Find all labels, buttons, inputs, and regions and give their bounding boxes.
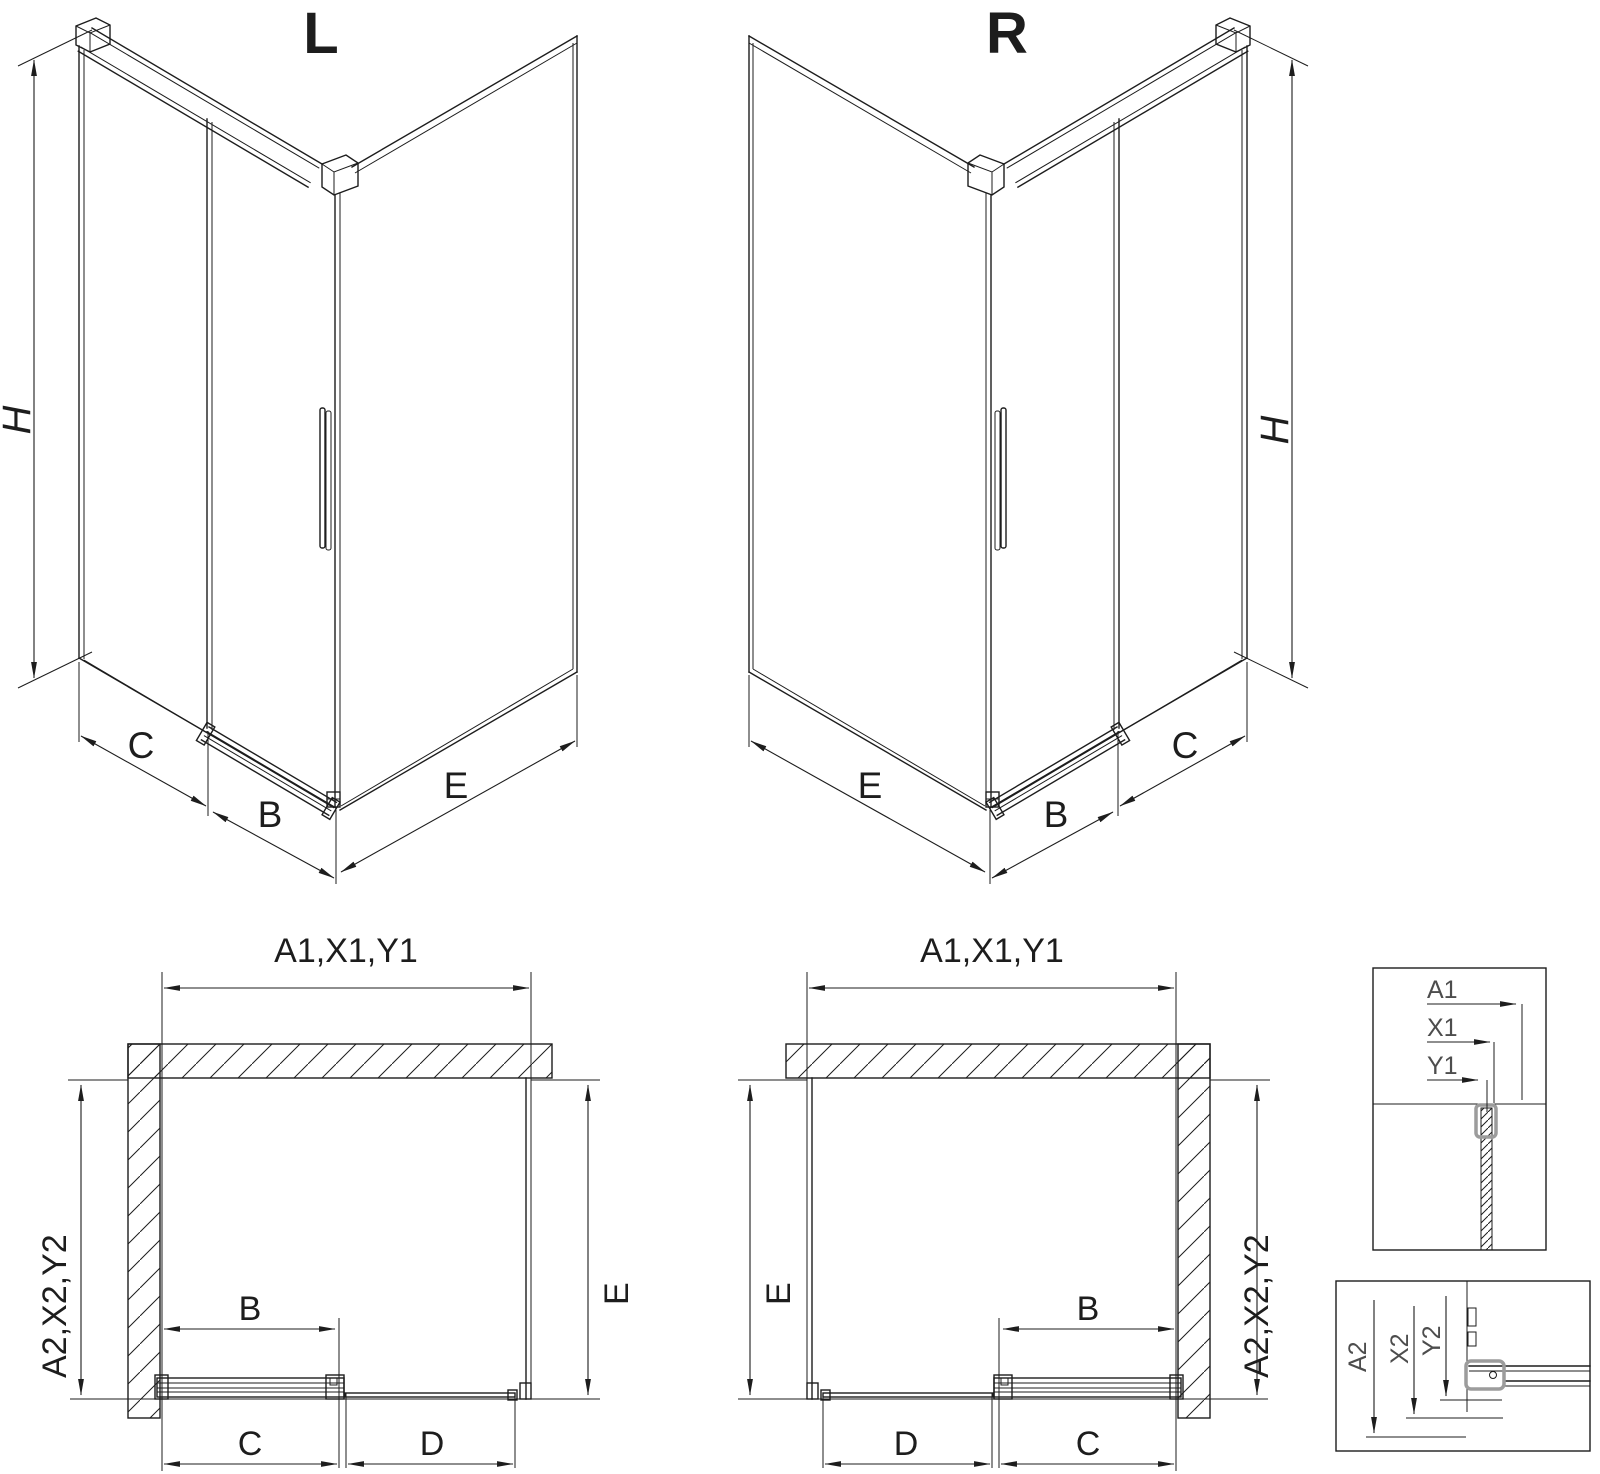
detail-bottom-a2-label: A2 bbox=[1344, 1341, 1372, 1372]
iso-left-title: L bbox=[303, 1, 338, 66]
detail-bottom-roller bbox=[1490, 1372, 1497, 1379]
iso-view-left: L H C B E bbox=[0, 1, 577, 884]
plan-left-depth-label: A2,X2,Y2 bbox=[36, 1234, 74, 1378]
detail-top-a1-label: A1 bbox=[1427, 976, 1458, 1004]
plan-view-right: A1,X1,Y1 A2,X2,Y2 E B C D bbox=[738, 932, 1276, 1471]
plan-right-depth-label: A2,X2,Y2 bbox=[1238, 1234, 1276, 1378]
plan-left-dim-b-label: B bbox=[239, 1290, 262, 1328]
plan-right-wall-side bbox=[1178, 1044, 1210, 1418]
plan-right-dim-e-label: E bbox=[760, 1282, 798, 1305]
shower-enclosure-diagram: L H C B E R H C B E A1,X1,Y1 A2,X2,Y2 E … bbox=[0, 0, 1600, 1474]
iso-right-dim-h-label: H bbox=[1253, 415, 1297, 444]
iso-left-dim-c-label: C bbox=[128, 725, 155, 766]
detail-top-x1-label: X1 bbox=[1427, 1014, 1458, 1042]
plan-view-left: A1,X1,Y1 A2,X2,Y2 E B C D bbox=[36, 932, 636, 1471]
plan-right-dim-d-label: D bbox=[894, 1425, 919, 1463]
detail-top-glass-section bbox=[1481, 1108, 1492, 1250]
detail-top-y1-label: Y1 bbox=[1427, 1052, 1458, 1080]
iso-left-dim-h-label: H bbox=[0, 405, 39, 434]
plan-left-width-label: A1,X1,Y1 bbox=[274, 932, 418, 970]
detail-view-bottom: A2 X2 Y2 bbox=[1336, 1281, 1590, 1451]
iso-right-title: R bbox=[986, 1, 1028, 66]
plan-right-wall-top bbox=[786, 1044, 1210, 1078]
detail-bottom-x2-label: X2 bbox=[1386, 1333, 1414, 1364]
iso-right-dim-c-label: C bbox=[1172, 725, 1199, 766]
plan-left-wall-top bbox=[128, 1044, 552, 1078]
plan-right-dim-b-label: B bbox=[1077, 1290, 1100, 1328]
iso-left-dim-e-label: E bbox=[444, 765, 469, 806]
detail-view-top: A1 X1 Y1 bbox=[1373, 968, 1546, 1250]
iso-left-dim-b-label: B bbox=[258, 794, 283, 835]
detail-bottom-clamp bbox=[1466, 1361, 1504, 1389]
plan-left-dim-e-label: E bbox=[598, 1282, 636, 1305]
plan-right-dim-c-label: C bbox=[1076, 1425, 1101, 1463]
iso-view-right: R H C B E bbox=[749, 1, 1308, 884]
plan-left-wall-side bbox=[128, 1044, 160, 1418]
iso-right-dim-e-label: E bbox=[858, 765, 883, 806]
plan-left-dim-c-label: C bbox=[238, 1425, 263, 1463]
plan-left-dim-d-label: D bbox=[420, 1425, 445, 1463]
plan-right-width-label: A1,X1,Y1 bbox=[920, 932, 1064, 970]
iso-right-dim-b-label: B bbox=[1044, 794, 1069, 835]
technical-drawing-page: L H C B E R H C B E A1,X1,Y1 A2,X2,Y2 E … bbox=[0, 0, 1600, 1474]
detail-bottom-y2-label: Y2 bbox=[1418, 1325, 1446, 1356]
